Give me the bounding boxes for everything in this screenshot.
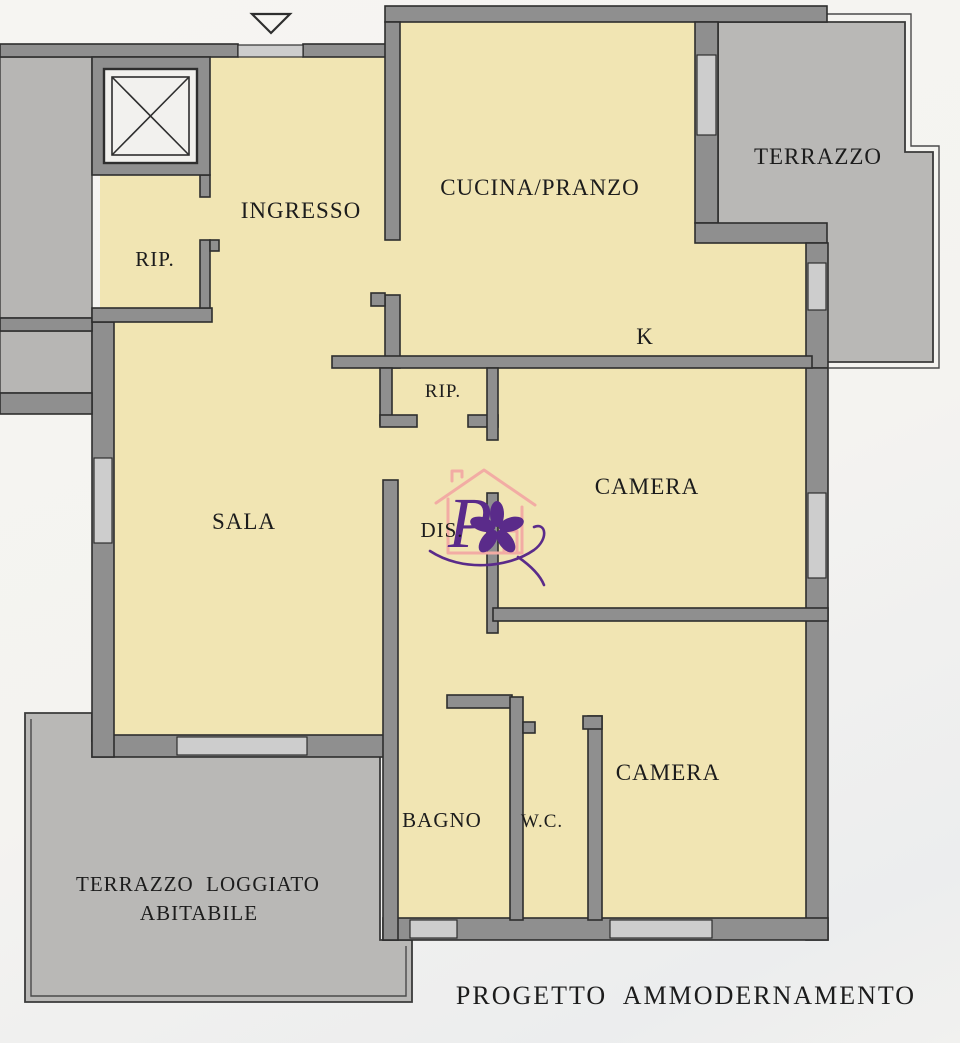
window-opening (94, 458, 112, 543)
door-jamb (523, 722, 535, 733)
label-rip-mid: RIP. (425, 381, 461, 402)
wall-segment (806, 368, 828, 940)
wall-segment (200, 175, 210, 197)
label-k: K (636, 324, 654, 349)
label-loggiato-line2: ABITABILE (140, 901, 258, 925)
door-jamb (371, 293, 385, 306)
label-terrazzo: TERRAZZO (754, 144, 882, 169)
wall-segment (0, 318, 92, 331)
wall-segment (380, 415, 417, 427)
room-rip-top (100, 173, 204, 310)
wall-segment (510, 697, 523, 920)
wall-segment (385, 22, 400, 240)
neighbor-area (0, 57, 92, 318)
floor-plan-drawing: P INGRESSO RIP. CUCINA/PRANZO TERRAZZO K… (0, 0, 960, 1043)
entrance-door-opening (238, 45, 303, 57)
window-opening (808, 493, 826, 578)
entrance-arrow-icon (252, 14, 290, 33)
floor-plan-page: P INGRESSO RIP. CUCINA/PRANZO TERRAZZO K… (0, 0, 960, 1043)
wall-segment (447, 695, 512, 708)
label-bagno: BAGNO (402, 808, 482, 832)
wall-segment (92, 308, 212, 322)
label-loggiato-line1: TERRAZZO LOGGIATO (76, 872, 320, 896)
label-wc: W.C. (521, 811, 563, 832)
window-opening (610, 920, 712, 938)
label-sala: SALA (212, 509, 276, 534)
terrace-door-opening (697, 55, 716, 135)
window-opening (177, 737, 307, 755)
room-cucina-k (390, 240, 808, 362)
neighbor-area (0, 331, 92, 393)
elevator-icon (104, 69, 197, 163)
door-jamb (210, 240, 219, 251)
wall-segment (695, 223, 827, 243)
door-jamb (583, 716, 602, 729)
wall-segment (385, 6, 827, 22)
room-cucina (390, 20, 697, 245)
wall-segment (588, 716, 602, 920)
label-camera-bottom: CAMERA (616, 760, 720, 785)
wall-segment (487, 368, 498, 440)
label-camera-mid: CAMERA (595, 474, 699, 499)
footer-title: PROGETTO AMMODERNAMENTO (456, 981, 916, 1010)
label-cucina-pranzo: CUCINA/PRANZO (440, 175, 640, 200)
wall-segment (383, 480, 398, 940)
wall-segment (0, 393, 92, 414)
wall-segment (493, 608, 828, 621)
wall-segment (0, 44, 238, 57)
label-rip-top: RIP. (135, 247, 175, 271)
window-opening (410, 920, 457, 938)
wall-segment (332, 356, 812, 368)
wall-segment (303, 44, 390, 57)
label-ingresso: INGRESSO (241, 198, 361, 223)
window-opening (808, 263, 826, 310)
wall-segment (200, 240, 210, 308)
label-dis: DIS. (420, 518, 463, 542)
